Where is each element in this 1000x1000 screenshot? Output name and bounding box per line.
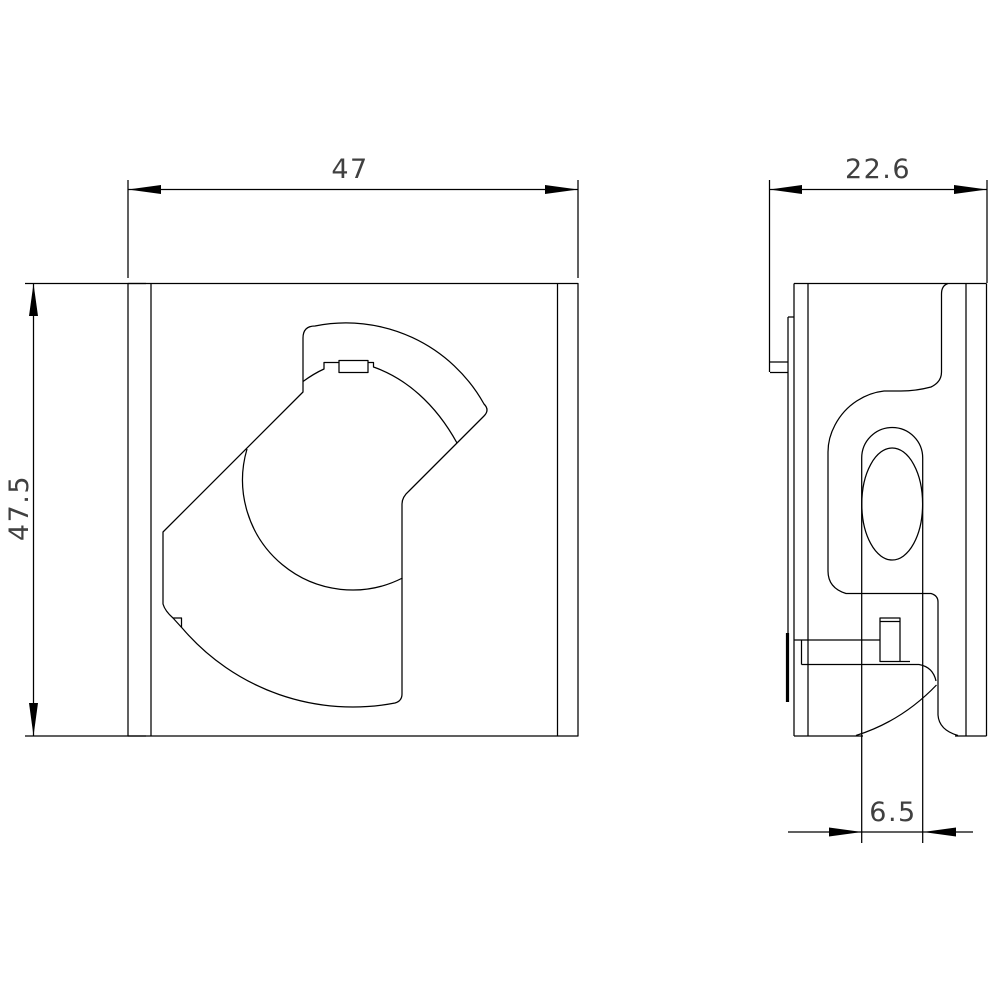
- arrowhead-right: [923, 828, 956, 837]
- knob-top-tab: [339, 361, 368, 373]
- mounting-slot-arch: [862, 427, 923, 458]
- dim-label-front-height: 47.5: [4, 475, 35, 541]
- knob-lower-arc: [243, 449, 403, 590]
- arrowhead-right: [545, 185, 578, 194]
- dimension-front-width: 47: [128, 154, 578, 278]
- dimension-drawing: 47 47.5 22.6 6.5: [0, 0, 1000, 1000]
- arrowhead-bottom: [29, 703, 38, 736]
- arrowhead-left: [829, 828, 862, 837]
- arrowhead-top: [29, 284, 38, 317]
- slot-oval-opening: [862, 448, 923, 560]
- front-body-outline: [128, 284, 578, 737]
- dimension-side-depth: 22.6: [770, 154, 988, 372]
- knob-upper-arc: [303, 363, 339, 382]
- clip-block: [880, 618, 900, 662]
- arrowhead-right: [954, 185, 987, 194]
- drawing-canvas: 47 47.5 22.6 6.5: [0, 0, 1000, 1000]
- dimension-front-height: 47.5: [4, 284, 146, 737]
- side-view: [770, 284, 987, 844]
- knob-housing-silhouette: [163, 323, 487, 707]
- dim-label-slot-width: 6.5: [869, 797, 916, 828]
- front-view: [128, 284, 578, 737]
- knob-upper-arc-right: [368, 363, 457, 444]
- bottom-sweep-curve: [856, 685, 937, 736]
- arrowhead-left: [770, 185, 803, 194]
- dimension-slot-width: 6.5: [788, 797, 973, 837]
- arrowhead-left: [128, 185, 161, 194]
- dim-label-side-depth: 22.6: [845, 154, 911, 185]
- channel-bottom-line: [802, 665, 937, 682]
- inner-profile-curve: [828, 284, 958, 736]
- dim-label-front-width: 47: [331, 154, 368, 185]
